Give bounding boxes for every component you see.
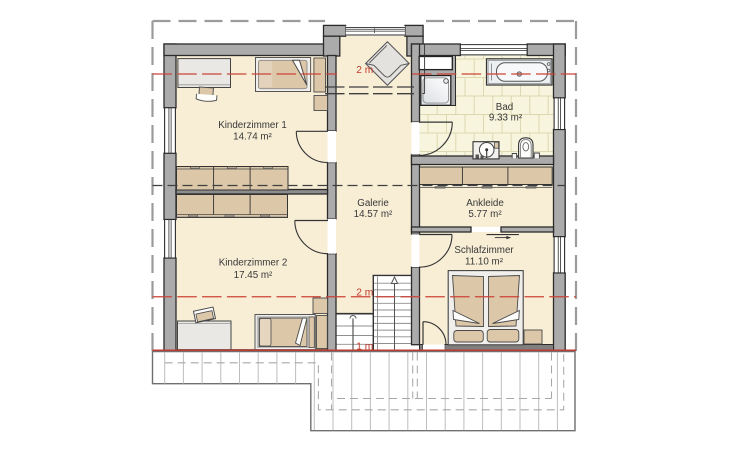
svg-text:9.33 m²: 9.33 m² <box>489 113 523 124</box>
svg-text:1 m: 1 m <box>356 341 373 352</box>
svg-text:Ankleide: Ankleide <box>466 198 504 209</box>
svg-text:5.77 m²: 5.77 m² <box>468 209 502 220</box>
svg-text:11.10 m²: 11.10 m² <box>465 257 504 268</box>
svg-text:14.74 m²: 14.74 m² <box>233 131 272 142</box>
svg-text:Kinderzimmer 1: Kinderzimmer 1 <box>218 120 287 131</box>
svg-text:2 m: 2 m <box>356 65 373 76</box>
svg-text:17.45 m²: 17.45 m² <box>234 270 273 281</box>
svg-text:Kinderzimmer 2: Kinderzimmer 2 <box>219 258 288 269</box>
svg-text:14.57 m²: 14.57 m² <box>354 209 393 220</box>
svg-text:Schlafzimmer: Schlafzimmer <box>454 245 514 256</box>
svg-text:2 m: 2 m <box>356 288 373 299</box>
svg-text:Galerie: Galerie <box>357 198 389 209</box>
svg-text:Bad: Bad <box>496 102 513 113</box>
